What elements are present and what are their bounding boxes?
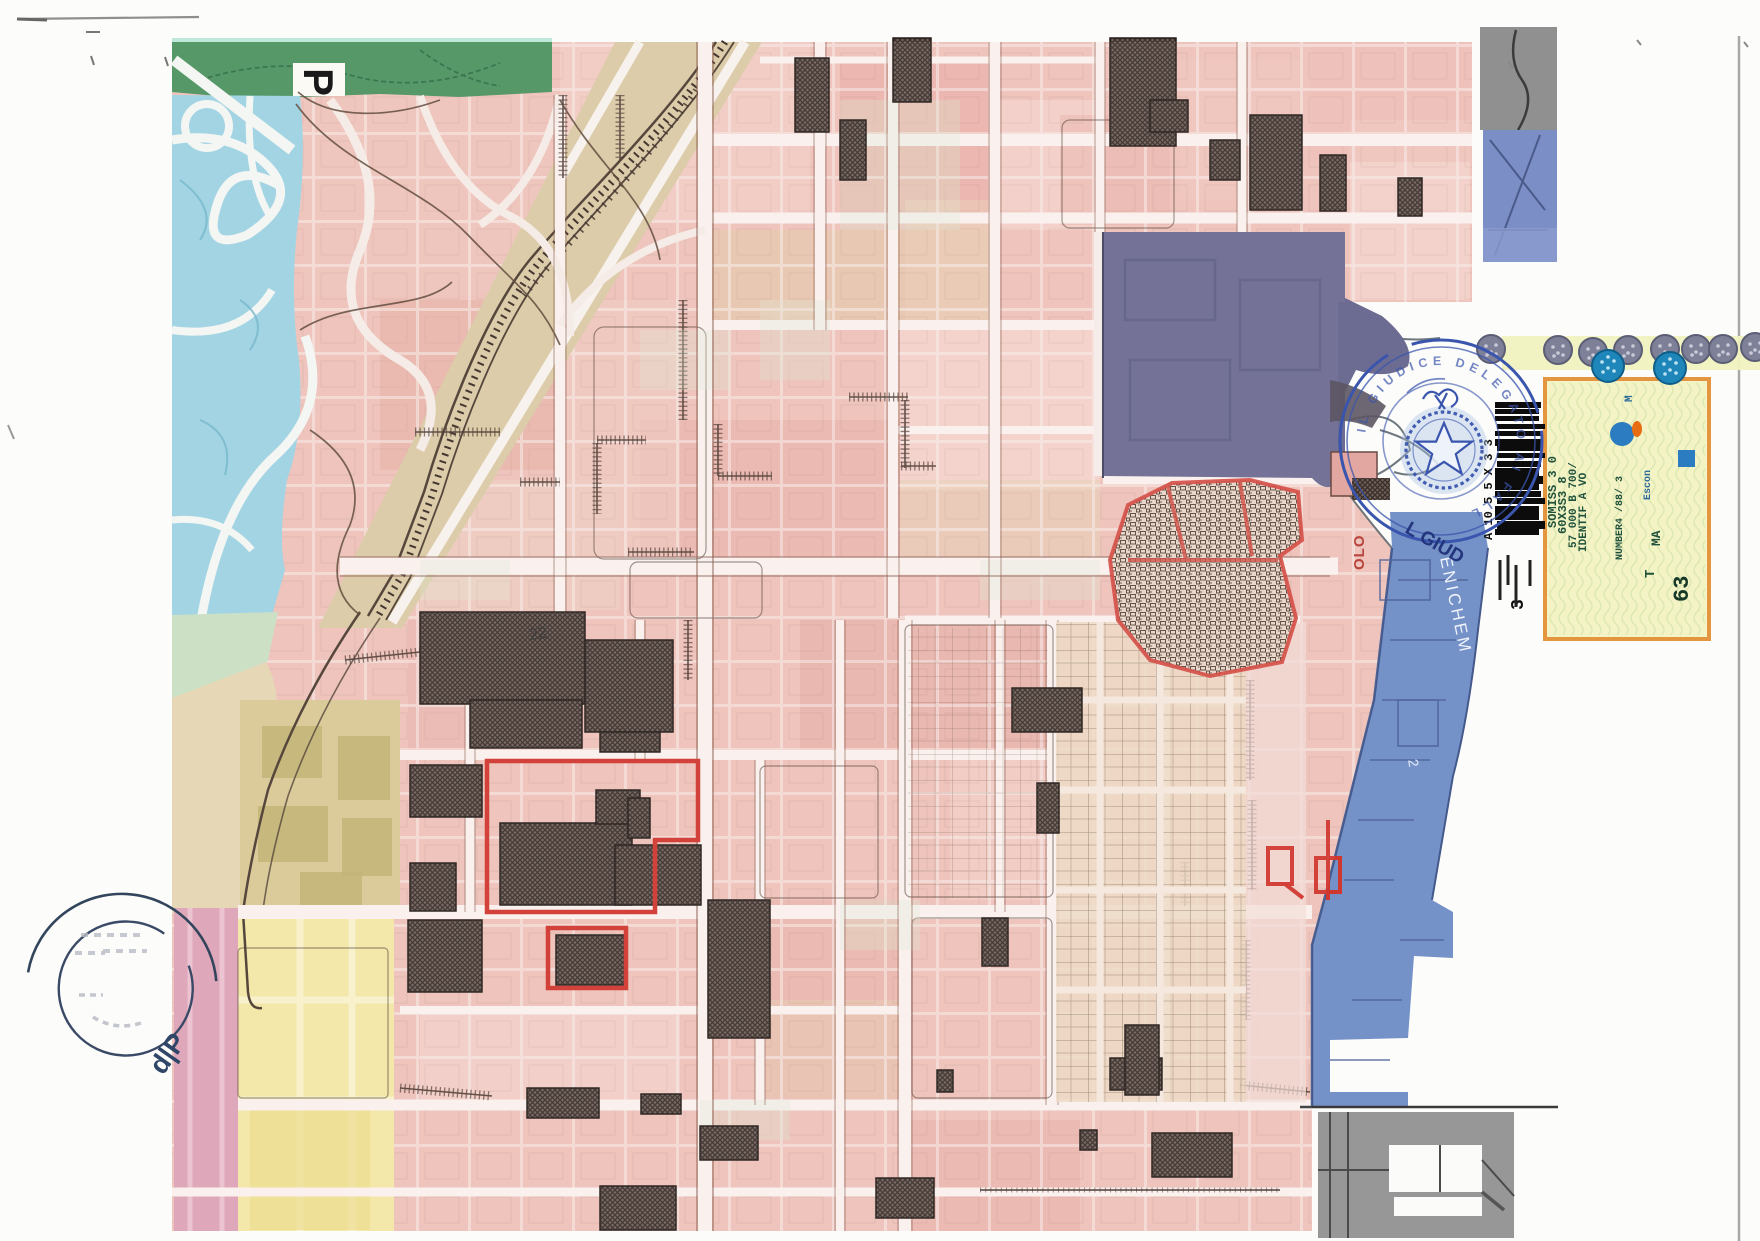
svg-text:3: 3 <box>1509 599 1529 610</box>
svg-text:Escon: Escon <box>1643 470 1654 500</box>
svg-text:MA: MA <box>1649 530 1664 546</box>
svg-text:M: M <box>1624 395 1636 402</box>
svg-text:63: 63 <box>1670 576 1695 602</box>
svg-text:OLO: OLO <box>1351 535 1368 571</box>
svg-text:T: T <box>1643 570 1659 578</box>
svg-text:NUMBER4 /88/ 3: NUMBER4 /88/ 3 <box>1614 476 1626 560</box>
svg-text:IDENTIF A VO: IDENTIF A VO <box>1578 472 1590 552</box>
